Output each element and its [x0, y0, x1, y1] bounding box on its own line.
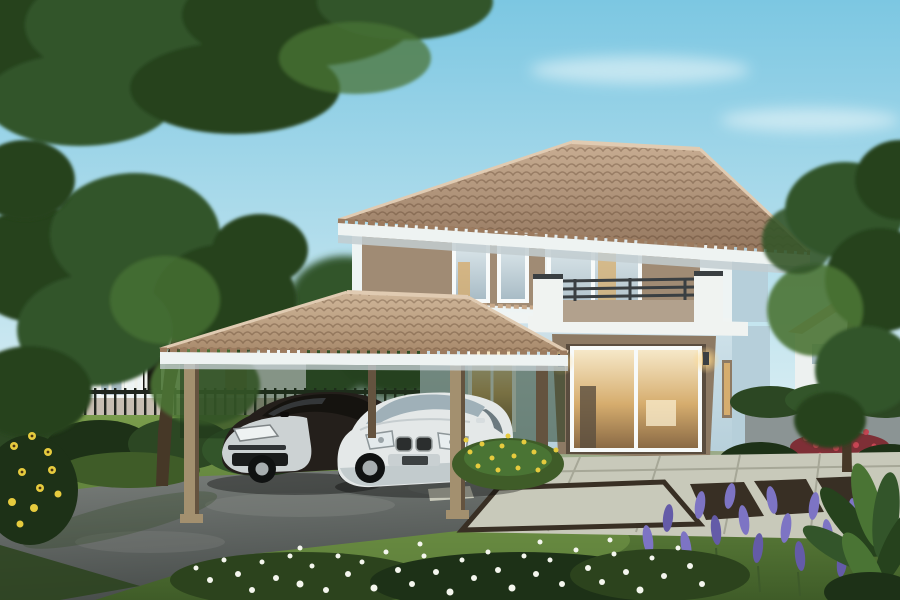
alloy-rim: [256, 463, 269, 476]
alloy-rim: [363, 461, 378, 476]
interior-furniture-silhouette: [580, 386, 596, 448]
side-mirror: [476, 418, 485, 423]
balcony: [528, 271, 748, 336]
wall-lamp: [692, 346, 720, 374]
scene-svg: [0, 0, 900, 600]
balcony-panel: [563, 300, 696, 322]
side-mirror: [280, 412, 289, 417]
license-plate: [402, 456, 428, 465]
kidney-grille: [416, 437, 432, 451]
photo-canvas: [0, 0, 900, 600]
balcony-parapet-right: [694, 271, 723, 325]
carport-rear-post: [368, 360, 376, 438]
kidney-grille: [396, 437, 412, 451]
sliding-glass-door: [570, 346, 702, 452]
grille-bar: [228, 445, 286, 450]
balcony-parapet-left: [533, 274, 563, 328]
